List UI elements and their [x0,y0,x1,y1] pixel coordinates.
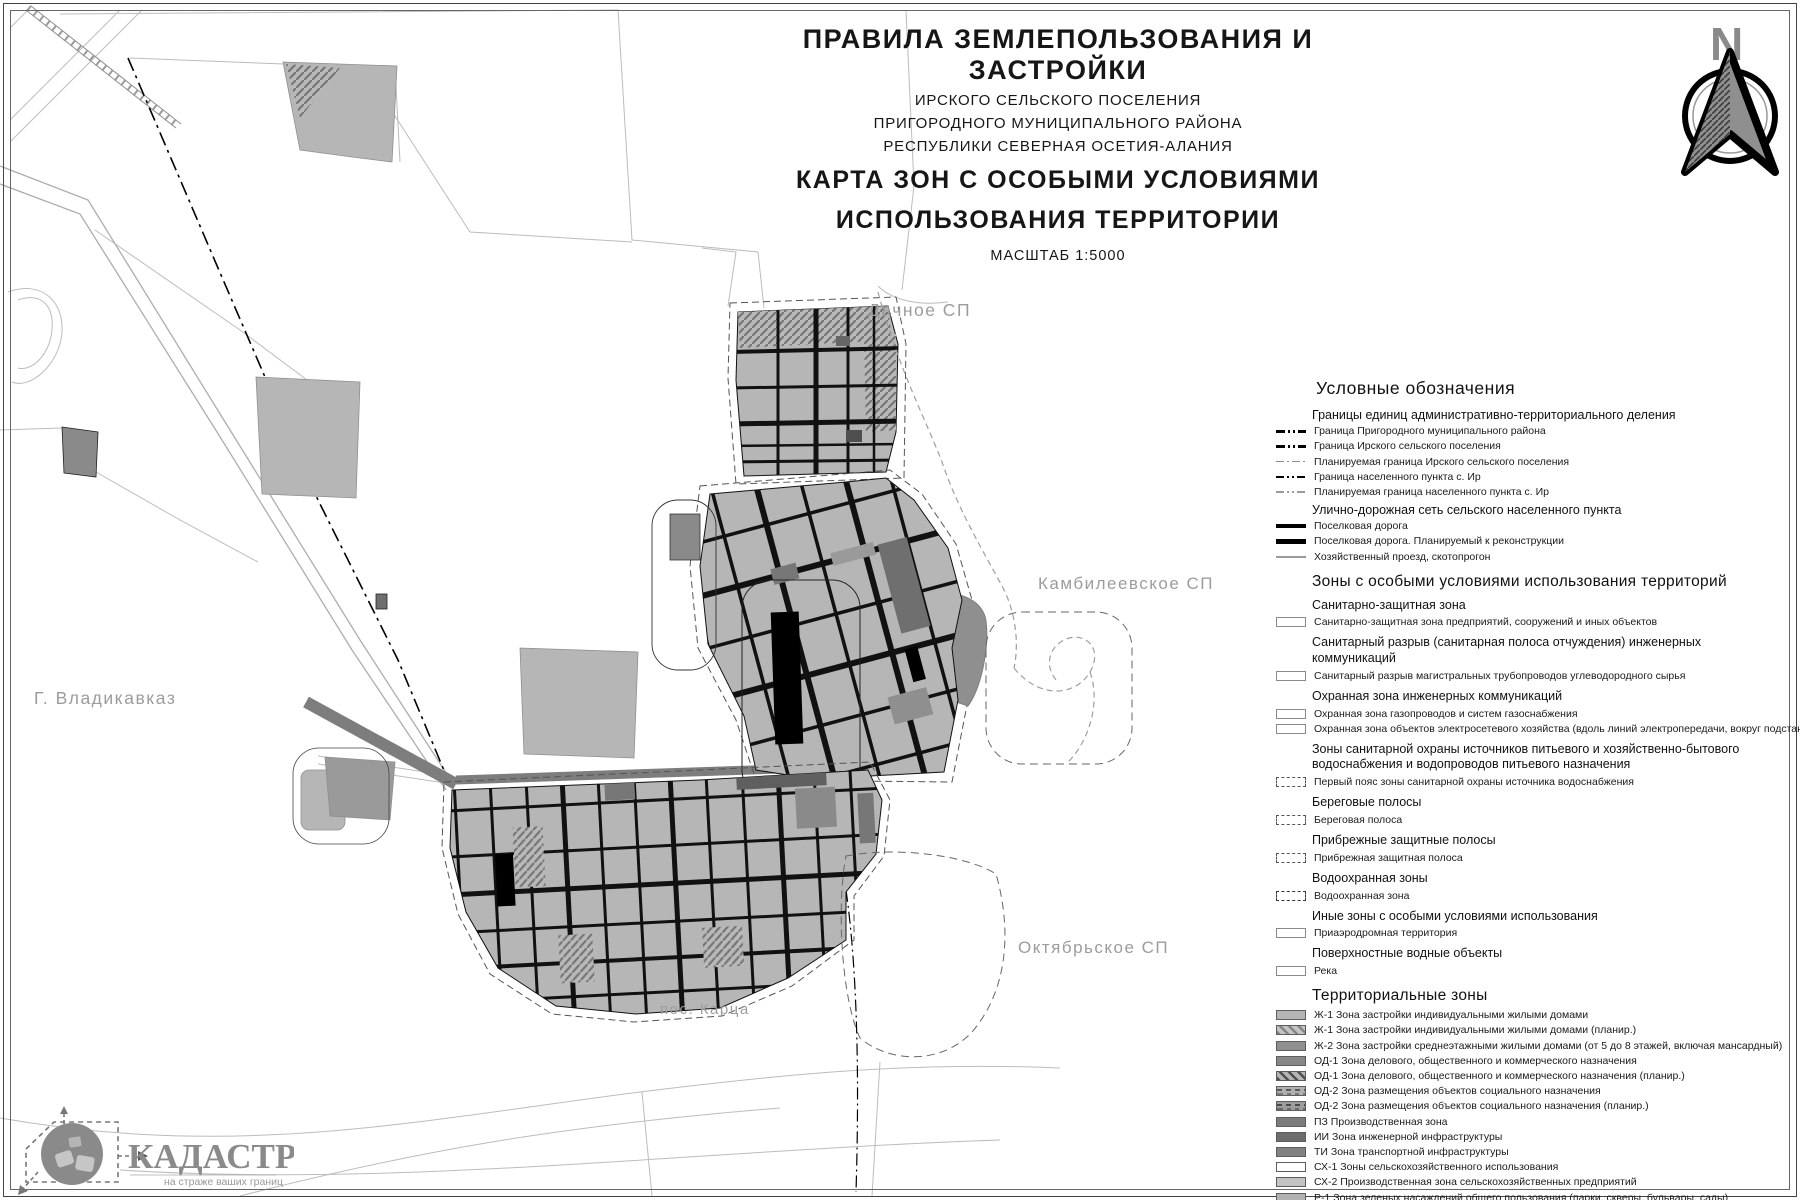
legend-item-label: Санитарный разрыв магистральных трубопро… [1314,670,1685,682]
north-arrow-icon: N [1652,12,1800,182]
boundary-municipal-line [1276,430,1306,433]
zone-od1-planned-swatch [1276,1071,1306,1081]
legend-item-label: Прибрежная защитная полоса [1314,852,1463,864]
legend-item-label: Поселковая дорога [1314,520,1408,532]
legend-item: Планируемая граница населенного пункта с… [1276,486,1796,498]
legend-item: Береговая полоса [1276,814,1796,826]
map-title-line: ПРИГОРОДНОГО МУНИЦИПАЛЬНОГО РАЙОНА [758,115,1358,132]
legend-item-label: СХ-2 Производственная зона сельскохозяйс… [1314,1176,1637,1188]
legend-item: Приаэродромная территория [1276,927,1796,939]
legend-item: ТИ Зона транспортной инфраструктуры [1276,1146,1796,1158]
legend-section-header: Поверхностные водные объекты [1312,946,1786,962]
legend-item: Первый пояс зоны санитарной охраны источ… [1276,776,1796,788]
legend-item: Охранная зона объектов электросетевого х… [1276,723,1796,735]
legend-item: Граница Ирского сельского поселения [1276,440,1796,452]
legend-item: Река [1276,965,1796,977]
water-protection-zone-swatch [1276,891,1306,901]
zone-od2-planned-swatch [1276,1101,1306,1111]
zone-sx1-swatch [1276,1162,1306,1172]
legend-item: ОД-2 Зона размещения объектов социальног… [1276,1085,1796,1097]
gas-protection-swatch [1276,709,1306,719]
zone-pz-swatch [1276,1117,1306,1127]
zone-zh1-planned-swatch [1276,1025,1306,1035]
legend-section-header: Прибрежные защитные полосы [1312,833,1786,849]
legend-section-header: Территориальные зоны [1312,987,1796,1005]
legend-section-header: Санитарно-защитная зона [1312,598,1786,614]
legend-item-label: Береговая полоса [1314,814,1402,826]
legend-item-label: Река [1314,965,1337,977]
map-scale-label: МАСШТАБ 1:5000 [758,248,1358,264]
legend-item-label: Планируемая граница Ирского сельского по… [1314,456,1569,468]
legend-item-label: Поселковая дорога. Планируемый к реконст… [1314,535,1564,547]
legend-panel: Условные обозначенияГраницы единиц админ… [1276,378,1796,1200]
legend-item: ОД-2 Зона размещения объектов социальног… [1276,1100,1796,1112]
boundary-settlement-line [1276,445,1306,447]
legend-item-label: Хозяйственный проезд, скотопрогон [1314,551,1490,563]
legend-item-label: ОД-1 Зона делового, общественного и комм… [1314,1055,1637,1067]
place-label-karca: пос. Карца [660,1001,750,1018]
legend-item: Ж-1 Зона застройки индивидуальными жилым… [1276,1024,1796,1036]
legend-section-header: Улично-дорожная сеть сельского населенно… [1312,503,1796,517]
legend-item-label: Ж-1 Зона застройки индивидуальными жилым… [1314,1024,1636,1036]
legend-item-label: Граница Пригородного муниципального райо… [1314,425,1546,437]
legend-item: Прибрежная защитная полоса [1276,852,1796,864]
legend-item-label: ОД-2 Зона размещения объектов социальног… [1314,1100,1649,1112]
legend-title: Условные обозначения [1316,378,1796,399]
legend-item: ИИ Зона инженерной инфраструктуры [1276,1131,1796,1143]
legend-section-header: Охранная зона инженерных коммуникаций [1312,689,1786,705]
legend-item: ПЗ Производственная зона [1276,1116,1796,1128]
legend-item: Граница населенного пункта с. Ир [1276,471,1796,483]
boundary-locality-line [1276,476,1306,478]
zone-r1-swatch [1276,1193,1306,1200]
power-grid-protection-swatch [1276,724,1306,734]
riparian-protective-strip-swatch [1276,853,1306,863]
legend-section-header: Санитарный разрыв (санитарная полоса отч… [1312,635,1786,666]
legend-item-label: ТИ Зона транспортной инфраструктуры [1314,1146,1509,1158]
hatched-boundary-line [26,6,181,128]
aerodrome-territory-swatch [1276,928,1306,938]
legend-item-label: ОД-1 Зона делового, общественного и комм… [1314,1070,1685,1082]
legend-item: Ж-1 Зона застройки индивидуальными жилым… [1276,1009,1796,1021]
boundary-settlement-planned-line [1276,461,1306,463]
shoreline-strip-swatch [1276,815,1306,825]
legend-item: Санитарно-защитная зона предприятий, соо… [1276,616,1796,628]
legend-item-label: Приаэродромная территория [1314,927,1457,939]
legend-item: Охранная зона газопроводов и систем газо… [1276,708,1796,720]
map-title-line: РЕСПУБЛИКИ СЕВЕРНАЯ ОСЕТИЯ-АЛАНИЯ [758,138,1358,155]
legend-item: ОД-1 Зона делового, общественного и комм… [1276,1070,1796,1082]
settlement-cluster-north [728,297,906,484]
svg-text:КАДАСТР: КАДАСТР [128,1137,294,1176]
legend-item-label: Охранная зона объектов электросетевого х… [1314,723,1800,735]
zone-ii-swatch [1276,1132,1306,1142]
legend-item-label: Граница Ирского сельского поселения [1314,440,1501,452]
legend-item: Поселковая дорога. Планируемый к реконст… [1276,535,1796,547]
left-land-parcels [62,62,638,830]
legend-item-label: Охранная зона газопроводов и систем газо… [1314,708,1578,720]
zoning-map-sheet: ПРАВИЛА ЗЕМЛЕПОЛЬЗОВАНИЯ И ЗАСТРОЙКИ ИРС… [0,0,1800,1200]
legend-item: Хозяйственный проезд, скотопрогон [1276,551,1796,563]
sanitary-zone-swatch [1276,617,1306,627]
legend-section-header: Береговые полосы [1312,795,1786,811]
village-road-reconstruction-line [1276,539,1306,544]
map-title-line: ИРСКОГО СЕЛЬСКОГО ПОСЕЛЕНИЯ [758,92,1358,109]
legend-item-label: Ж-2 Зона застройки среднеэтажными жилыми… [1314,1040,1782,1052]
map-subtitle-line: ИСПОЛЬЗОВАНИЯ ТЕРРИТОРИИ [758,206,1358,235]
legend-item: ОД-1 Зона делового, общественного и комм… [1276,1055,1796,1067]
utility-passage-line [1276,556,1306,558]
legend-item: Р-1 Зона зеленых насаждений общего польз… [1276,1192,1796,1200]
legend-item-label: СХ-1 Зоны сельскохозяйственного использо… [1314,1161,1558,1173]
village-road-line [1276,524,1306,528]
legend-item: Поселковая дорога [1276,520,1796,532]
boundary-locality-planned-line [1276,491,1306,493]
legend-item-label: ПЗ Производственная зона [1314,1116,1447,1128]
legend-item-label: Планируемая граница населенного пункта с… [1314,486,1549,498]
sanitary-gap-swatch [1276,671,1306,681]
legend-item-label: Водоохранная зона [1314,890,1409,902]
legend-item-label: Граница населенного пункта с. Ир [1314,471,1481,483]
legend-section-header: Водоохранная зоны [1312,871,1786,887]
legend-section-header: Зоны с особыми условиями использования т… [1312,573,1796,591]
legend-item-label: ИИ Зона инженерной инфраструктуры [1314,1131,1502,1143]
legend-item-label: Р-1 Зона зеленых насаждений общего польз… [1314,1192,1728,1200]
legend-section-header: Иные зоны с особыми условиями использова… [1312,909,1786,925]
legend-item: Водоохранная зона [1276,890,1796,902]
legend-item-label: Первый пояс зоны санитарной охраны источ… [1314,776,1634,788]
zone-zh2-swatch [1276,1041,1306,1051]
map-subtitle-line: КАРТА ЗОН С ОСОБЫМИ УСЛОВИЯМИ [758,166,1358,195]
title-block: ПРАВИЛА ЗЕМЛЕПОЛЬЗОВАНИЯ И ЗАСТРОЙКИ ИРС… [758,24,1358,264]
map-title-line: ПРАВИЛА ЗЕМЛЕПОЛЬЗОВАНИЯ И ЗАСТРОЙКИ [758,24,1358,86]
place-label-oktyabrskoe: Октябрьское СП [1018,938,1169,958]
legend-item-label: ОД-2 Зона размещения объектов социальног… [1314,1085,1601,1097]
legend-item: Санитарный разрыв магистральных трубопро… [1276,670,1796,682]
legend-section-header: Границы единиц административно-территори… [1312,408,1796,422]
legend-item-label: Ж-1 Зона застройки индивидуальными жилым… [1314,1009,1588,1021]
legend-item: Планируемая граница Ирского сельского по… [1276,456,1796,468]
zone-ti-swatch [1276,1147,1306,1157]
zone-od2-swatch [1276,1086,1306,1096]
legend-item: Ж-2 Зона застройки среднеэтажными жилыми… [1276,1040,1796,1052]
svg-text:на страже ваших границ: на страже ваших границ [164,1176,283,1188]
kadastr-logo: КАДАСТР на страже ваших границ [14,1104,294,1196]
zone-od1-swatch [1276,1056,1306,1066]
place-label-vladikavkaz: Г. Владикавказ [34,688,176,709]
place-label-kambileevskoe: Камбилеевское СП [1038,574,1214,594]
legend-section-header: Зоны санитарной охраны источников питьев… [1312,742,1786,773]
zone-sx2-swatch [1276,1177,1306,1187]
legend-item: СХ-2 Производственная зона сельскохозяйс… [1276,1176,1796,1188]
river-swatch [1276,966,1306,976]
zone-zh1-swatch [1276,1010,1306,1020]
place-label-dachnoe: Дачное СП [868,300,971,321]
legend-item: СХ-1 Зоны сельскохозяйственного использо… [1276,1161,1796,1173]
settlement-cluster-south [424,748,907,1042]
kadastr-logo-icon: КАДАСТР на страже ваших границ [14,1104,294,1196]
legend-item-label: Санитарно-защитная зона предприятий, соо… [1314,616,1657,628]
water-source-first-belt-swatch [1276,777,1306,787]
legend-item: Граница Пригородного муниципального райо… [1276,425,1796,437]
